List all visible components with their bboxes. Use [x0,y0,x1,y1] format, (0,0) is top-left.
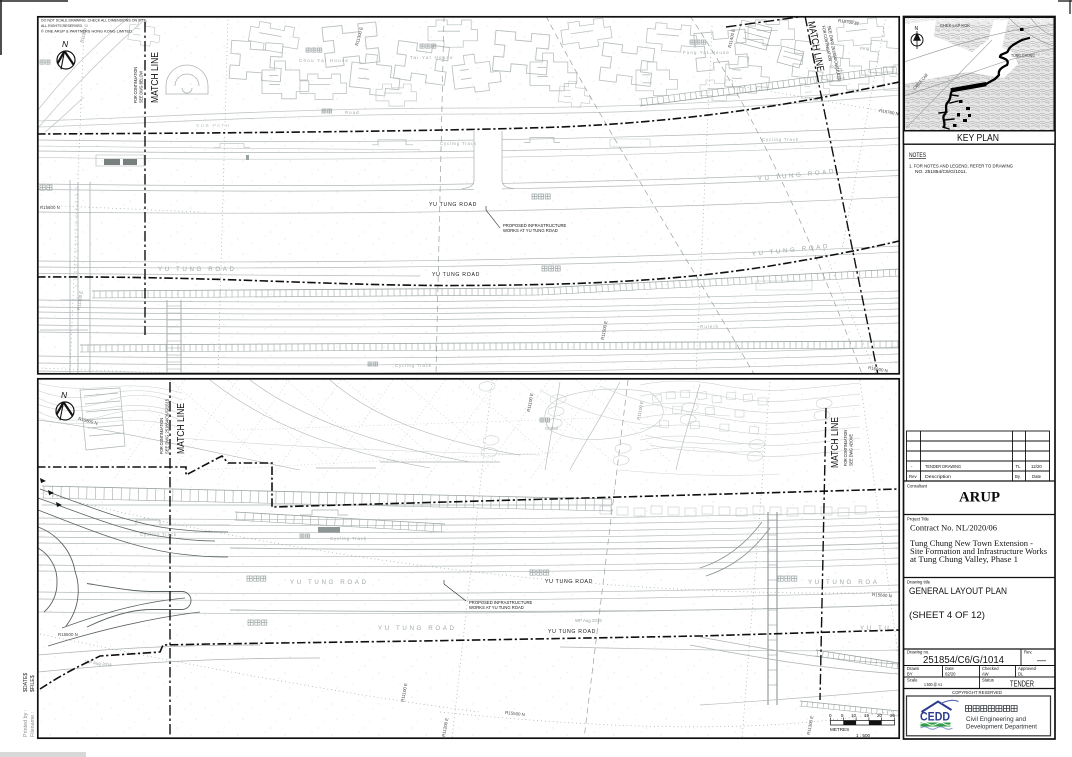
svg-text:$FILE$: $FILE$ [30,675,36,692]
svg-text:YU TU: YU TU [860,625,891,632]
svg-text:TENDER: TENDER [1010,680,1034,689]
svg-text:DL: DL [1018,672,1024,677]
svg-text:Cycling Track: Cycling Track [140,532,177,537]
svg-text:Drawing title: Drawing title [907,580,931,585]
svg-text:Fung Yat House: Fung Yat House [683,50,730,55]
svg-text:BY: BY [907,672,913,677]
svg-text:Outfall: Outfall [545,426,558,431]
svg-text:CHEK LAP KOK: CHEK LAP KOK [940,23,970,28]
svg-text:10: 10 [851,713,857,718]
svg-text:Filename :: Filename : [30,712,36,737]
svg-text:ALL RIGHTS RESERVED.: ALL RIGHTS RESERVED. [41,23,83,28]
svg-text:R15600 N: R15600 N [40,205,60,210]
svg-text:Approved: Approved [1018,666,1037,671]
svg-text:NO. 251854/C6/G/1011.: NO. 251854/C6/G/1011. [915,169,967,174]
svg-text:YU TUNG ROAD: YU TUNG ROAD [432,272,480,278]
svg-text:1 : 500: 1 : 500 [856,733,870,738]
svg-text:DO NOT SCALE DRAWING. CHECK AL: DO NOT SCALE DRAWING. CHECK ALL DIMENSIO… [41,18,147,23]
svg-text:Cycling Track: Cycling Track [330,536,367,541]
svg-text:WP Aug 2016: WP Aug 2016 [575,618,602,623]
svg-text:0: 0 [829,713,832,718]
svg-text:Printed by :: Printed by : [23,710,29,737]
svg-text:Consultant: Consultant [907,484,928,489]
svg-text:Contract No. NL/2020/06: Contract No. NL/2020/06 [910,523,998,533]
svg-text:20: 20 [877,713,883,718]
svg-text:251854/C6/G/1014: 251854/C6/G/1014 [923,655,1004,666]
svg-text:METRES: METRES [830,727,849,732]
svg-text:N: N [62,39,69,49]
svg-text:MATCH LINE: MATCH LINE [150,52,161,103]
svg-text:© ONE ARUP & PARTNERS HONG K: © ONE ARUP & PARTNERS HONG KONG LIMITED. [41,29,133,34]
svg-text:Tai Yat House: Tai Yat House [410,55,454,60]
svg-text:YU TUNG ROAD: YU TUNG ROAD [545,579,593,585]
svg-text:YU TUNG ROAD: YU TUNG ROAD [548,629,596,635]
svg-text:R15500 N: R15500 N [58,632,78,637]
svg-text:By: By [1015,474,1021,479]
svg-text:Development Department: Development Department [966,724,1037,731]
svg-text:YU TUNG ROAD: YU TUNG ROAD [290,579,369,586]
svg-text:(SHEET 4 OF 12): (SHEET 4 OF 12) [909,609,985,620]
svg-text:Checked: Checked [982,666,999,671]
svg-text:YU TUNG ROAD: YU TUNG ROAD [378,625,457,632]
svg-text:Description: Description [925,474,952,479]
svg-text:SUB PATH: SUB PATH [196,123,230,129]
svg-text:SEE DWG 251854/C6/G/1015: SEE DWG 251854/C6/G/1015 [165,398,170,454]
svg-text:Project Title: Project Title [907,517,930,522]
svg-text:TENDER DRAWING: TENDER DRAWING [925,464,962,469]
svg-text:FOR CONTINUATION: FOR CONTINUATION [843,430,848,466]
svg-text:1. FOR NOTES AND LEGEND, REFER: 1. FOR NOTES AND LEGEND, REFER TO DRAWIN… [909,164,1013,169]
svg-text:Date: Date [945,666,955,671]
svg-text:COPYRIGHT RESERVED: COPYRIGHT RESERVED [952,690,1002,695]
svg-text:Civil Engineering and: Civil Engineering and [966,716,1026,723]
svg-text:FOR CONTINUATION: FOR CONTINUATION [133,67,138,103]
svg-text:Drawn: Drawn [907,666,920,671]
svg-text:Chou Yat House: Chou Yat House [299,58,349,63]
svg-text:ARUP: ARUP [959,490,1000,506]
svg-text:MATCH LINE: MATCH LINE [830,417,841,468]
svg-text:SEE DWG BELOW: SEE DWG BELOW [139,70,144,103]
svg-text:Drawing no.: Drawing no. [907,650,929,655]
svg-text:N: N [61,390,68,400]
svg-text:SEE DWG ABOVE: SEE DWG ABOVE [849,434,854,466]
svg-text:NOTES: NOTES [909,152,926,159]
svg-text:15: 15 [864,713,870,718]
svg-text:$DATE$: $DATE$ [23,673,29,692]
svg-text:CEDD: CEDD [920,712,950,724]
svg-text:Cycling Track: Cycling Track [762,137,799,142]
svg-text:02/20: 02/20 [945,672,956,677]
svg-text:Cycling Track: Cycling Track [440,141,477,146]
svg-text:—: — [1037,655,1046,665]
svg-text:Rev.: Rev. [1024,650,1032,655]
svg-text:Scale: Scale [907,678,918,683]
svg-text:YU TUNG ROAD: YU TUNG ROAD [158,266,237,273]
svg-text:Rev: Rev [909,474,917,479]
svg-text:WORKS AT YU TUNG ROAD: WORKS AT YU TUNG ROAD [503,228,558,233]
svg-text:GENERAL LAYOUT PLAN: GENERAL LAYOUT PLAN [909,585,1007,596]
svg-text:YU TUNG ROAD: YU TUNG ROAD [429,202,477,208]
svg-text:TL: TL [1016,464,1022,469]
svg-text:Status: Status [982,678,994,683]
svg-text:Ruleih: Ruleih [700,324,719,329]
svg-text:FOR CONTINUATION: FOR CONTINUATION [159,418,164,454]
svg-text:TUNG CHUNG: TUNG CHUNG [1011,53,1035,58]
svg-text:Road: Road [345,110,360,115]
svg-text:1:500 @ A1: 1:500 @ A1 [924,682,942,688]
svg-text:WORKS AT YU TUNG ROAD: WORKS AT YU TUNG ROAD [469,605,524,610]
svg-text:5: 5 [841,713,844,718]
svg-text:KEY PLAN: KEY PLAN [957,133,999,144]
svg-text:Ping: Ping [860,46,870,51]
svg-text:N: N [915,26,919,32]
svg-text:12/20: 12/20 [1031,464,1042,469]
svg-text:25: 25 [890,713,896,718]
svg-text:Date: Date [1032,474,1042,479]
svg-text:AW: AW [982,672,989,677]
svg-text:at Tung Chung Valley, Phase 1: at Tung Chung Valley, Phase 1 [910,555,1018,564]
svg-text:Cycling Track: Cycling Track [395,363,432,368]
svg-text:MATCH LINE: MATCH LINE [176,403,187,454]
svg-text:YU TUNG ROA: YU TUNG ROA [808,579,879,586]
